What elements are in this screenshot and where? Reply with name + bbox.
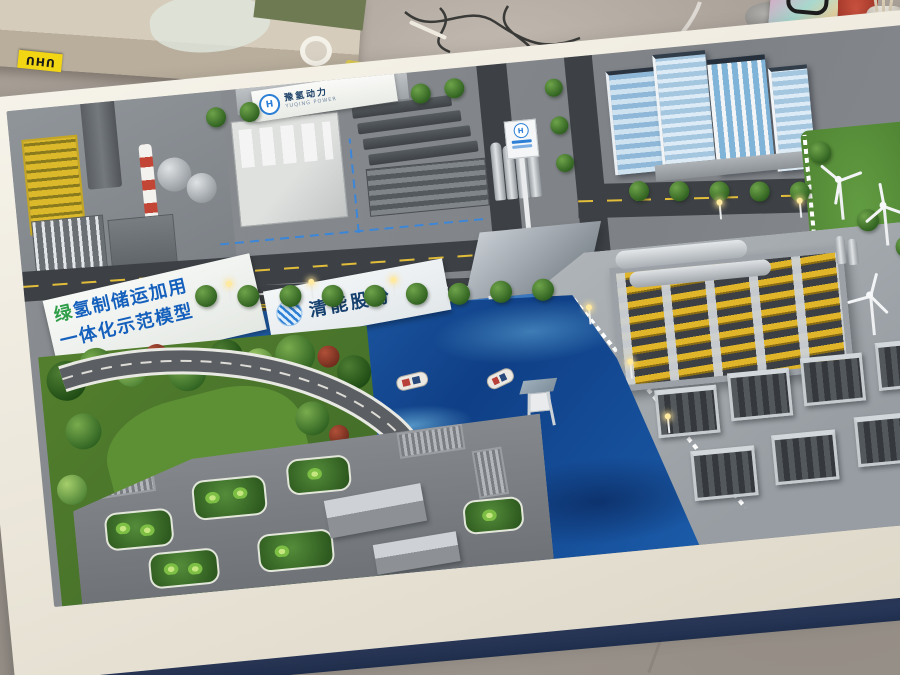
model-surface: H 豫氢动力 YUQING POWER H bbox=[6, 23, 900, 607]
gantry-skid bbox=[727, 368, 793, 422]
rod bbox=[882, 0, 885, 12]
tree bbox=[544, 78, 564, 98]
turbine-pole bbox=[883, 205, 890, 245]
palm-plant bbox=[187, 562, 204, 575]
factory-sign-text: 豫氢动力 YUQING POWER bbox=[284, 87, 337, 109]
palm-plant bbox=[232, 486, 249, 499]
palm-plant bbox=[204, 491, 221, 504]
gantry-skid bbox=[690, 445, 758, 501]
sign-bar bbox=[512, 139, 532, 144]
plant-island bbox=[256, 528, 335, 573]
h-logo: H bbox=[513, 122, 529, 138]
process-tower bbox=[80, 95, 123, 190]
blue-tower bbox=[652, 50, 715, 165]
pipe-line bbox=[349, 138, 360, 233]
glue-brand-label: UHU bbox=[24, 53, 55, 69]
plaza-shed bbox=[324, 483, 427, 538]
gantry-skid bbox=[854, 411, 900, 467]
palm-plant bbox=[114, 521, 131, 534]
palm-plant bbox=[139, 523, 156, 536]
industrial-zone bbox=[6, 91, 237, 286]
model-table: H 豫氢动力 YUQING POWER H bbox=[0, 6, 900, 675]
gantry-skid bbox=[771, 429, 839, 485]
gantry-skid bbox=[654, 385, 720, 439]
sign-bar bbox=[512, 144, 532, 149]
plant-island bbox=[191, 474, 268, 521]
h-logo-letter: H bbox=[517, 126, 524, 135]
gantry-skid bbox=[800, 352, 866, 406]
roof-monitors bbox=[238, 121, 333, 168]
h-logo-letter: H bbox=[265, 99, 274, 110]
workshop-photo: { "scene": { "type": "photograph", "subj… bbox=[0, 0, 900, 675]
pergola-frame bbox=[472, 446, 510, 498]
palm-plant bbox=[273, 544, 290, 557]
plant-island bbox=[462, 496, 525, 536]
tree bbox=[550, 116, 570, 136]
plaza-shed bbox=[373, 531, 461, 574]
plant-island bbox=[285, 454, 352, 496]
palm-plant bbox=[481, 508, 498, 521]
gas-sphere bbox=[185, 172, 218, 205]
palm-plant bbox=[306, 467, 323, 480]
equipment-grid bbox=[366, 158, 490, 217]
tree bbox=[555, 153, 575, 173]
bag-handle bbox=[785, 0, 829, 16]
palm-plant bbox=[163, 562, 180, 575]
boat-cargo bbox=[492, 373, 508, 385]
white-factory bbox=[231, 112, 349, 228]
station-pole-sign: H bbox=[504, 119, 539, 160]
plant-island bbox=[103, 507, 174, 551]
h-logo: H bbox=[258, 93, 282, 117]
tape-roll bbox=[300, 36, 332, 66]
plant-island bbox=[148, 547, 221, 590]
